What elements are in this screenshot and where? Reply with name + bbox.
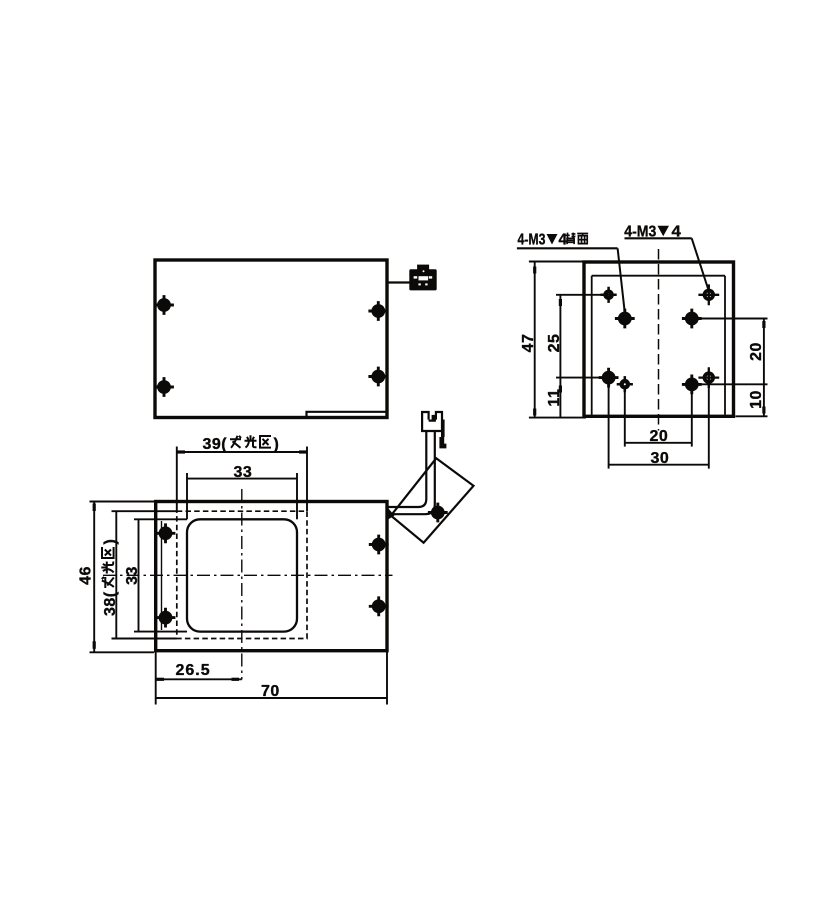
svg-text:38(: 38(	[102, 591, 119, 616]
svg-text:33: 33	[234, 464, 253, 481]
svg-text:26.5: 26.5	[176, 662, 211, 679]
svg-text:33: 33	[124, 566, 141, 585]
svg-text:20: 20	[650, 428, 669, 445]
svg-text:39(: 39(	[203, 436, 228, 453]
svg-text:): )	[274, 436, 279, 453]
svg-text:30: 30	[651, 450, 670, 467]
svg-text:4: 4	[559, 232, 568, 249]
svg-text:25: 25	[546, 334, 563, 353]
svg-text:11: 11	[546, 389, 563, 407]
svg-text:4-M3: 4-M3	[518, 232, 546, 249]
svg-text:10: 10	[748, 390, 765, 409]
svg-text:46: 46	[78, 566, 95, 585]
svg-text:): )	[102, 539, 119, 544]
svg-text:70: 70	[261, 683, 280, 700]
svg-text:47: 47	[520, 334, 537, 353]
svg-text:20: 20	[748, 342, 765, 361]
